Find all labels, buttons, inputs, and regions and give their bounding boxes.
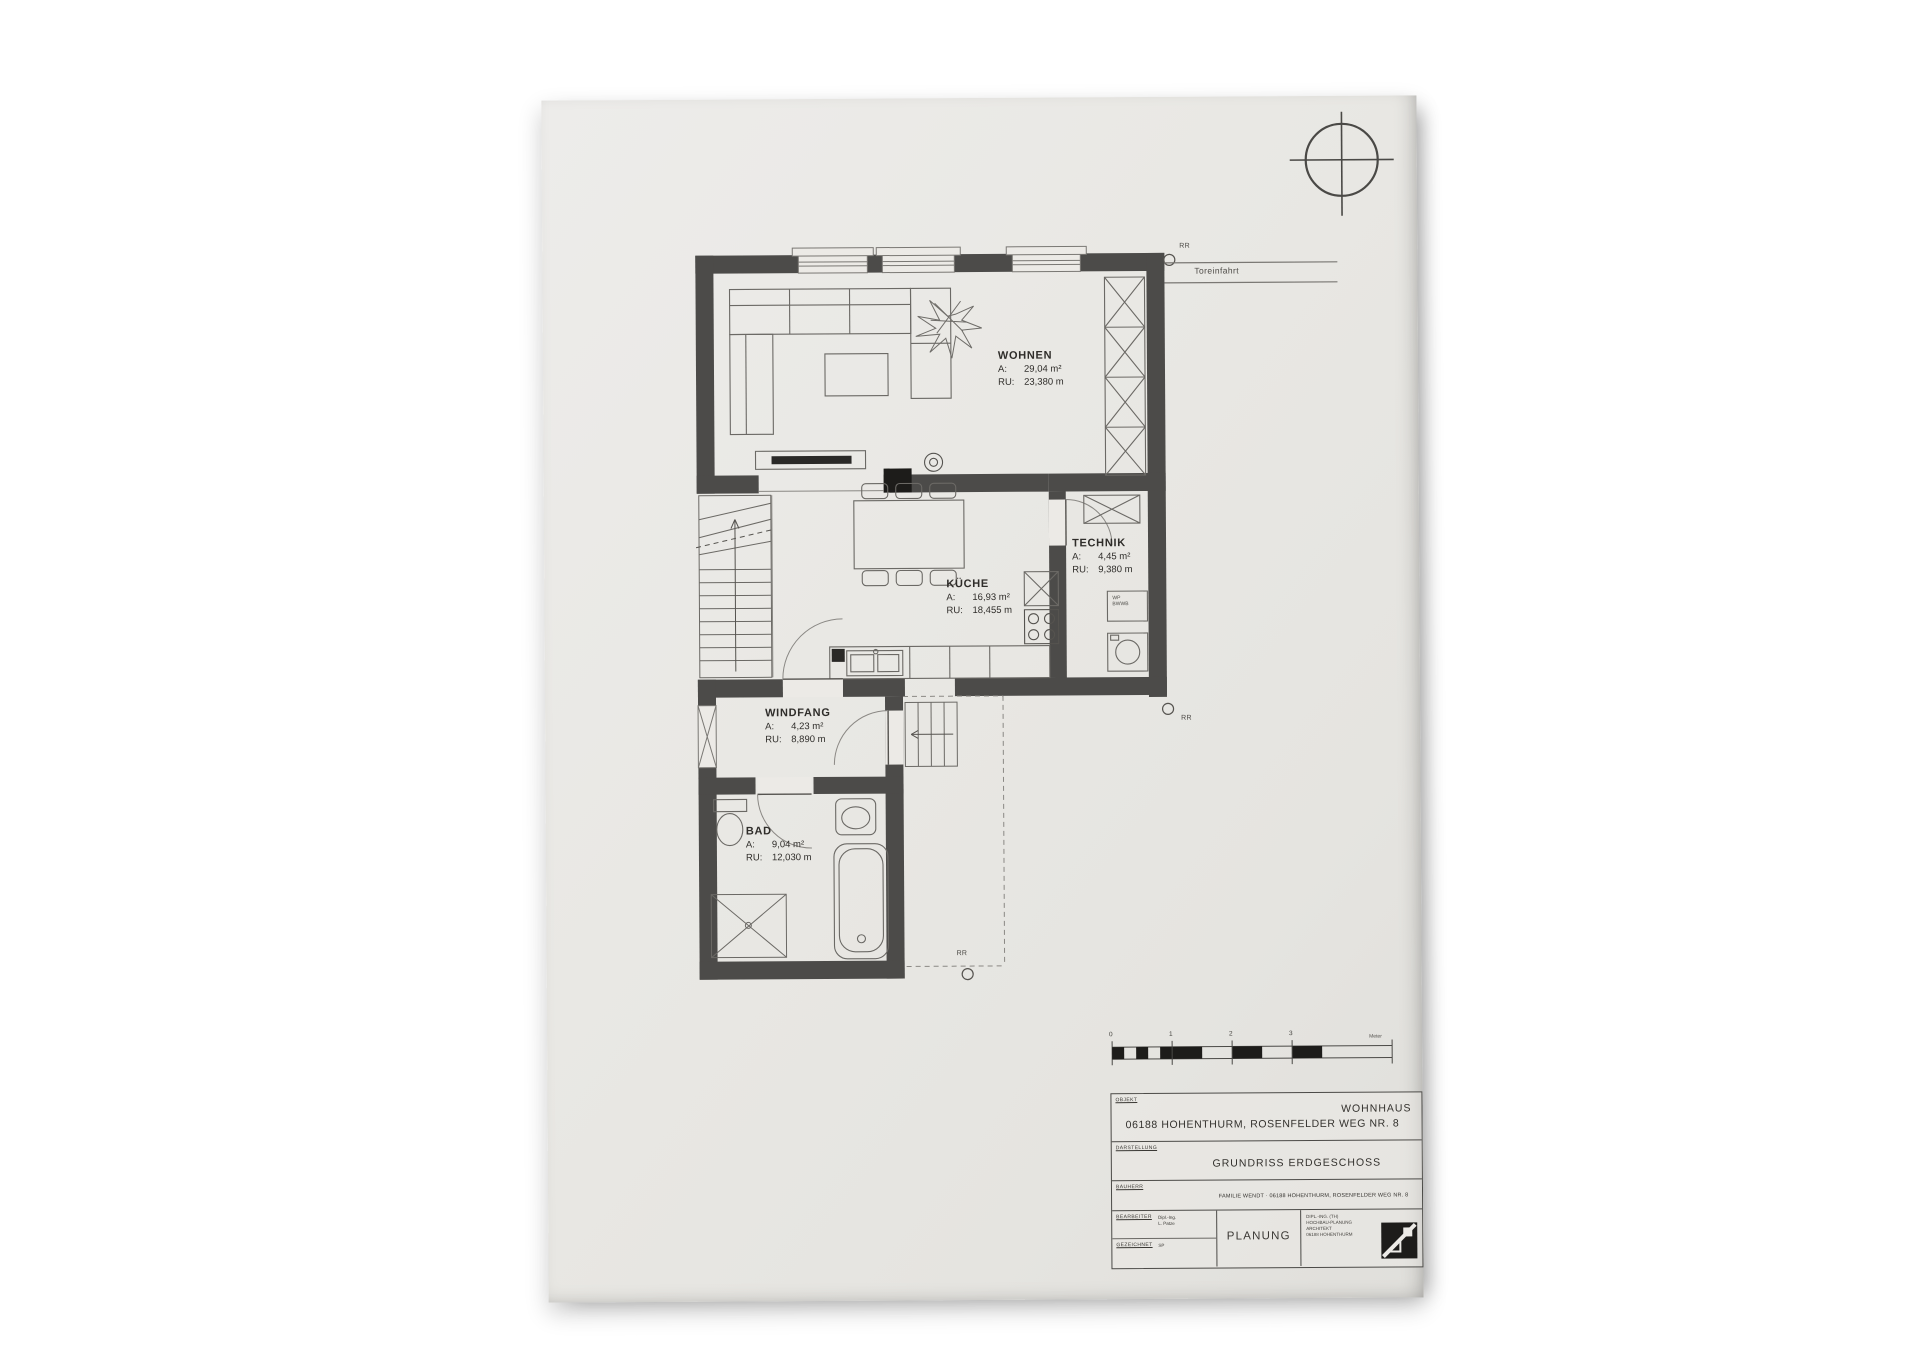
rr-markers xyxy=(958,254,1179,979)
room-name: BAD xyxy=(746,825,812,837)
sofa xyxy=(729,288,951,434)
exterior-walls xyxy=(695,253,1168,980)
kitchen-counter xyxy=(830,646,1050,679)
objekt-label: OBJEKT xyxy=(1115,1097,1137,1103)
room-label-windfang: WINDFANG A:4,23 m² RU:8,890 m xyxy=(765,707,831,745)
phase-cell: PLANUNG xyxy=(1217,1210,1301,1267)
title-row-darstellung: DARSTELLUNG GRUNDRISS ERDGESCHOSS xyxy=(1112,1140,1422,1181)
editor-cell: BEARBEITER Dipl.-Ing. L. Patze GEZEICHNE… xyxy=(1112,1211,1217,1268)
toilet xyxy=(714,799,747,845)
scale-tick-1: 1 xyxy=(1169,1031,1173,1039)
gate-lines xyxy=(1164,262,1337,283)
washing-machine xyxy=(1108,633,1148,671)
bauherr-label: BAUHERR xyxy=(1116,1184,1143,1190)
registration-mark xyxy=(1289,111,1394,216)
entry-door xyxy=(834,710,903,764)
scale-unit-label: Meter xyxy=(1369,1034,1382,1040)
title-row-bauherr: BAUHERR FAMILIE WENDT · 06188 HOHENTHURM… xyxy=(1112,1179,1422,1211)
windfang-window xyxy=(698,706,716,768)
cell-divider xyxy=(1112,1238,1216,1240)
technik-window xyxy=(1084,495,1140,523)
fireplace-stove xyxy=(924,453,942,471)
room-name: KÜCHE xyxy=(946,578,1012,590)
title-row-bottom: BEARBEITER Dipl.-Ing. L. Patze GEZEICHNE… xyxy=(1112,1209,1422,1267)
bauherr-value: FAMILIE WENDT · 06188 HOHENTHURM, ROSENF… xyxy=(1207,1192,1420,1199)
kitchen-sink xyxy=(847,649,903,676)
entry-steps xyxy=(905,702,957,766)
bathtub xyxy=(834,844,889,959)
bearbeiter-value: Dipl.-Ing. L. Patze xyxy=(1158,1215,1176,1227)
passage-line xyxy=(759,491,884,492)
staircase xyxy=(696,495,775,677)
firm-lines: DIPL.-ING. (TH) HOCHBAU-PLANUNG ARCHITEK… xyxy=(1306,1214,1352,1239)
coffee-table xyxy=(825,354,888,396)
room-label-wohnen: WOHNEN A:29,04 m² RU:23,380 m xyxy=(998,349,1064,387)
title-row-objekt: OBJEKT WOHNHAUS 06188 HOHENTHURM, ROSENF… xyxy=(1111,1092,1421,1142)
rr-label-top: RR xyxy=(1179,243,1190,252)
shower xyxy=(711,894,786,957)
scale-tick-2: 2 xyxy=(1229,1030,1233,1038)
heat-pump-label: WP BWWB xyxy=(1112,595,1128,607)
bath-sink xyxy=(836,799,876,835)
wardrobe xyxy=(1104,277,1145,475)
darstellung-label: DARSTELLUNG xyxy=(1116,1145,1157,1151)
firm-cell: DIPL.-ING. (TH) HOCHBAU-PLANUNG ARCHITEK… xyxy=(1301,1209,1422,1266)
objekt-line1: WOHNHAUS xyxy=(1341,1102,1411,1114)
scale-tick-0: 0 xyxy=(1109,1031,1113,1039)
scale-tick-3: 3 xyxy=(1289,1030,1293,1038)
plant xyxy=(916,300,982,358)
bearbeiter-label: BEARBEITER xyxy=(1116,1214,1152,1220)
rr-label-right: RR xyxy=(1181,715,1192,724)
room-label-technik: TECHNIK A:4,45 m² RU:9,380 m xyxy=(1072,537,1133,575)
architect-logo xyxy=(1380,1221,1418,1259)
living-room-windows xyxy=(792,246,1086,273)
tv-sideboard xyxy=(755,451,865,470)
gezeichnet-label: GEZEICHNET xyxy=(1116,1242,1152,1248)
title-block: OBJEKT WOHNHAUS 06188 HOHENTHURM, ROSENF… xyxy=(1110,1091,1423,1269)
room-name: WOHNEN xyxy=(998,349,1064,361)
gezeichnet-value: SP xyxy=(1158,1243,1164,1248)
phase-value: PLANUNG xyxy=(1217,1230,1300,1243)
floor-plan-sheet: WOHNEN A:29,04 m² RU:23,380 m TECHNIK A:… xyxy=(541,95,1423,1302)
darstellung-value: GRUNDRISS ERDGESCHOSS xyxy=(1172,1156,1422,1170)
room-label-kueche: KÜCHE A:16,93 m² RU:18,455 m xyxy=(946,578,1012,616)
scale-bar xyxy=(1112,1040,1392,1066)
toreinfahrt-label: Toreinfahrt xyxy=(1194,265,1239,276)
room-name: WINDFANG xyxy=(765,707,831,719)
dining-table xyxy=(854,483,965,586)
room-label-bad: BAD A:9,04 m² RU:12,030 m xyxy=(746,825,812,863)
room-name: TECHNIK xyxy=(1072,537,1132,549)
rr-label-bottom: RR xyxy=(957,950,968,959)
objekt-line2: 06188 HOHENTHURM, ROSENFELDER WEG NR. 8 xyxy=(1126,1117,1422,1131)
